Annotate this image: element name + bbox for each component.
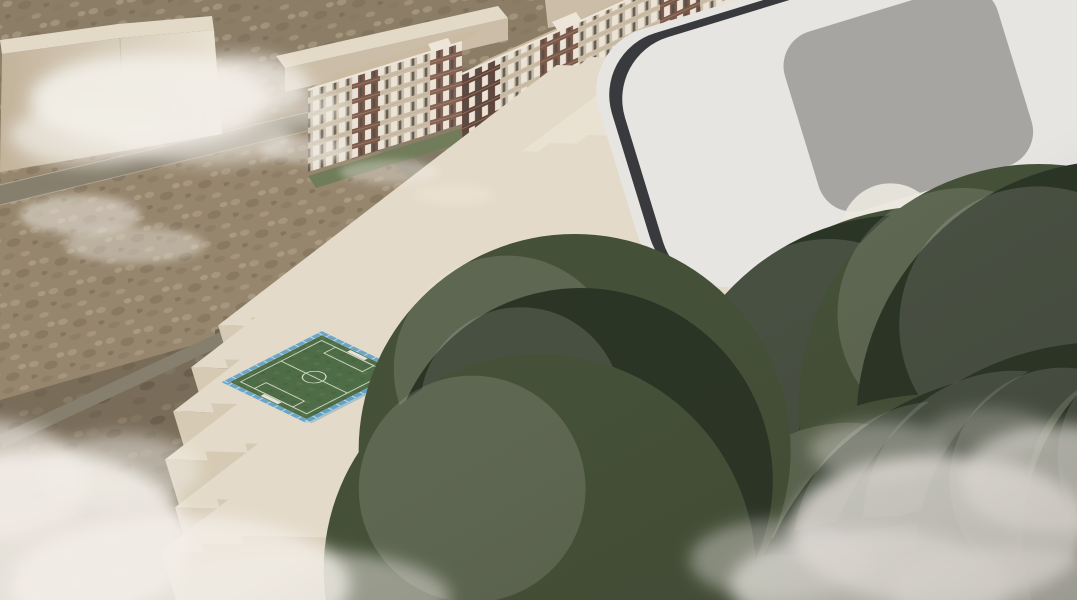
architectural-render xyxy=(0,0,1077,600)
render-canvas xyxy=(0,0,1077,600)
corner-shade xyxy=(0,0,1077,600)
